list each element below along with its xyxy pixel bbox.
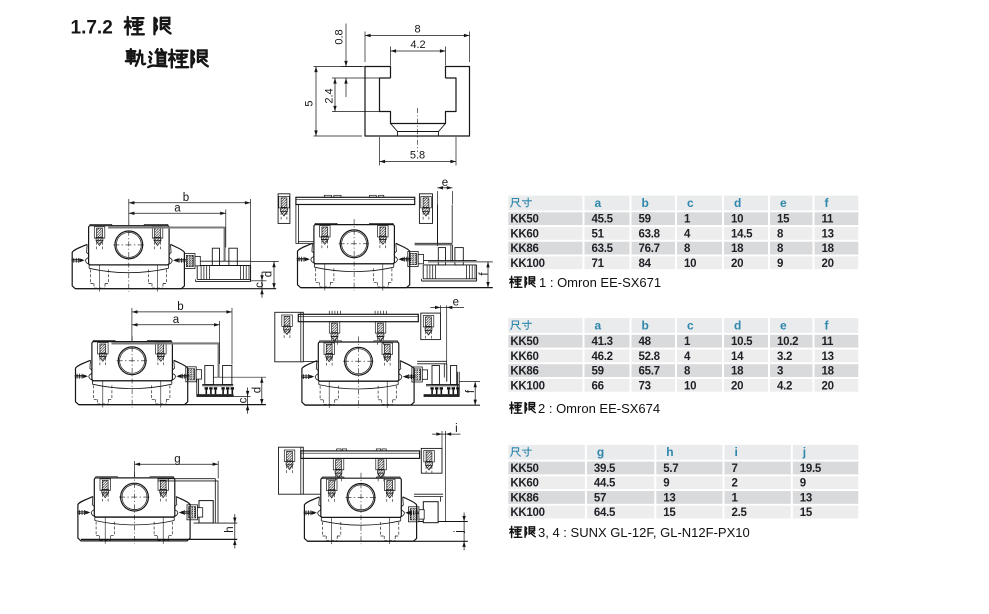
svg-text:0.8: 0.8: [334, 29, 346, 44]
svg-text:g: g: [174, 454, 180, 466]
svg-text:57: 57: [594, 492, 606, 504]
svg-text:8: 8: [414, 24, 420, 36]
svg-text:4: 4: [684, 351, 691, 363]
svg-text:13: 13: [822, 351, 834, 363]
svg-text:1: 1: [684, 336, 691, 348]
svg-text:73: 73: [639, 380, 651, 392]
svg-text:18: 18: [731, 243, 744, 255]
svg-text:20: 20: [731, 380, 743, 392]
svg-text:d: d: [734, 318, 741, 332]
svg-text:8: 8: [684, 366, 691, 378]
svg-text:e: e: [780, 318, 787, 332]
svg-text:10.2: 10.2: [777, 336, 798, 348]
svg-text:18: 18: [731, 366, 744, 378]
svg-text:18: 18: [822, 366, 835, 378]
svg-text:44.5: 44.5: [594, 478, 616, 490]
svg-text:8: 8: [777, 243, 784, 255]
svg-text:20: 20: [731, 258, 743, 270]
svg-text:i: i: [455, 423, 458, 435]
svg-text:5.7: 5.7: [663, 463, 678, 475]
svg-text:59: 59: [639, 214, 651, 226]
svg-text:19.5: 19.5: [800, 463, 822, 475]
svg-text:1: 1: [684, 214, 691, 226]
svg-text:15: 15: [663, 507, 676, 519]
svg-text:3, 4 : SUNX GL-12F, GL-N12F-PX: 3, 4 : SUNX GL-12F, GL-N12F-PX10: [538, 525, 750, 540]
svg-text:1 : Omron EE-SX671: 1 : Omron EE-SX671: [539, 275, 661, 290]
svg-text:KK50: KK50: [510, 463, 538, 475]
svg-text:76.7: 76.7: [639, 243, 660, 255]
svg-text:i: i: [735, 445, 738, 459]
svg-text:c: c: [687, 318, 694, 332]
svg-text:3: 3: [777, 366, 783, 378]
svg-text:9: 9: [777, 258, 783, 270]
svg-text:13: 13: [663, 492, 675, 504]
svg-text:h: h: [224, 526, 236, 532]
svg-text:a: a: [595, 318, 602, 332]
svg-text:KK86: KK86: [510, 492, 538, 504]
svg-text:10: 10: [731, 214, 743, 226]
svg-text:a: a: [174, 202, 181, 214]
svg-text:11: 11: [822, 214, 834, 226]
svg-text:65.7: 65.7: [639, 366, 660, 378]
svg-text:e: e: [780, 196, 787, 210]
svg-text:KK50: KK50: [510, 214, 538, 226]
svg-text:84: 84: [639, 258, 652, 270]
svg-text:d: d: [252, 387, 264, 393]
svg-text:15: 15: [777, 214, 790, 226]
svg-text:b: b: [642, 318, 649, 332]
svg-text:b: b: [177, 301, 183, 313]
svg-text:KK60: KK60: [510, 228, 538, 240]
svg-text:9: 9: [800, 478, 806, 490]
svg-text:7: 7: [732, 463, 738, 475]
svg-text:c: c: [238, 397, 250, 403]
svg-text:59: 59: [592, 366, 604, 378]
svg-text:KK60: KK60: [510, 478, 538, 490]
svg-text:3.2: 3.2: [777, 351, 792, 363]
svg-text:13: 13: [800, 492, 812, 504]
svg-text:1: 1: [732, 492, 739, 504]
svg-text:KK86: KK86: [510, 366, 538, 378]
svg-text:4.2: 4.2: [777, 380, 792, 392]
svg-text:KK100: KK100: [510, 507, 544, 519]
svg-text:41.3: 41.3: [592, 336, 613, 348]
svg-text:15: 15: [800, 507, 813, 519]
svg-text:10.5: 10.5: [731, 336, 753, 348]
svg-text:g: g: [597, 445, 604, 459]
svg-text:KK100: KK100: [510, 380, 544, 392]
svg-text:h: h: [666, 445, 673, 459]
svg-text:2 : Omron EE-SX674: 2 : Omron EE-SX674: [538, 401, 660, 416]
svg-text:b: b: [183, 192, 189, 204]
svg-text:13: 13: [822, 228, 834, 240]
svg-text:2: 2: [732, 478, 738, 490]
svg-text:5.8: 5.8: [410, 150, 425, 162]
svg-text:a: a: [595, 196, 602, 210]
svg-text:71: 71: [592, 258, 605, 270]
svg-text:20: 20: [822, 380, 834, 392]
svg-text:KK50: KK50: [510, 336, 538, 348]
svg-text:c: c: [687, 196, 694, 210]
svg-text:e: e: [442, 177, 448, 189]
svg-text:d: d: [734, 196, 741, 210]
svg-text:63.5: 63.5: [592, 243, 614, 255]
svg-text:KK60: KK60: [510, 351, 538, 363]
svg-text:63.8: 63.8: [639, 228, 661, 240]
svg-text:46.2: 46.2: [592, 351, 613, 363]
svg-text:2.5: 2.5: [732, 507, 748, 519]
svg-text:45.5: 45.5: [592, 214, 614, 226]
svg-text:52.8: 52.8: [639, 351, 661, 363]
svg-text:2.4: 2.4: [324, 88, 336, 103]
svg-text:b: b: [642, 196, 649, 210]
svg-text:4: 4: [684, 228, 691, 240]
svg-text:9: 9: [663, 478, 669, 490]
svg-text:a: a: [173, 314, 180, 326]
svg-text:51: 51: [592, 228, 605, 240]
svg-text:j: j: [454, 530, 466, 534]
svg-text:39.5: 39.5: [594, 463, 616, 475]
svg-text:10: 10: [684, 258, 696, 270]
svg-text:14.5: 14.5: [731, 228, 753, 240]
svg-text:66: 66: [592, 380, 604, 392]
svg-text:j: j: [802, 445, 806, 459]
svg-text:18: 18: [822, 243, 835, 255]
svg-text:10: 10: [684, 380, 696, 392]
svg-text:64.5: 64.5: [594, 507, 616, 519]
svg-text:4.2: 4.2: [410, 39, 425, 51]
svg-text:8: 8: [684, 243, 691, 255]
svg-text:11: 11: [822, 336, 834, 348]
svg-text:5: 5: [304, 100, 316, 106]
svg-text:KK100: KK100: [510, 258, 544, 270]
svg-text:d: d: [263, 271, 275, 277]
svg-text:48: 48: [639, 336, 652, 348]
svg-text:8: 8: [777, 228, 784, 240]
svg-text:e: e: [453, 297, 459, 309]
svg-text:KK86: KK86: [510, 243, 538, 255]
svg-text:c: c: [254, 282, 266, 288]
svg-text:1.7.2: 1.7.2: [71, 18, 113, 39]
svg-text:20: 20: [822, 258, 834, 270]
svg-text:14: 14: [731, 351, 744, 363]
